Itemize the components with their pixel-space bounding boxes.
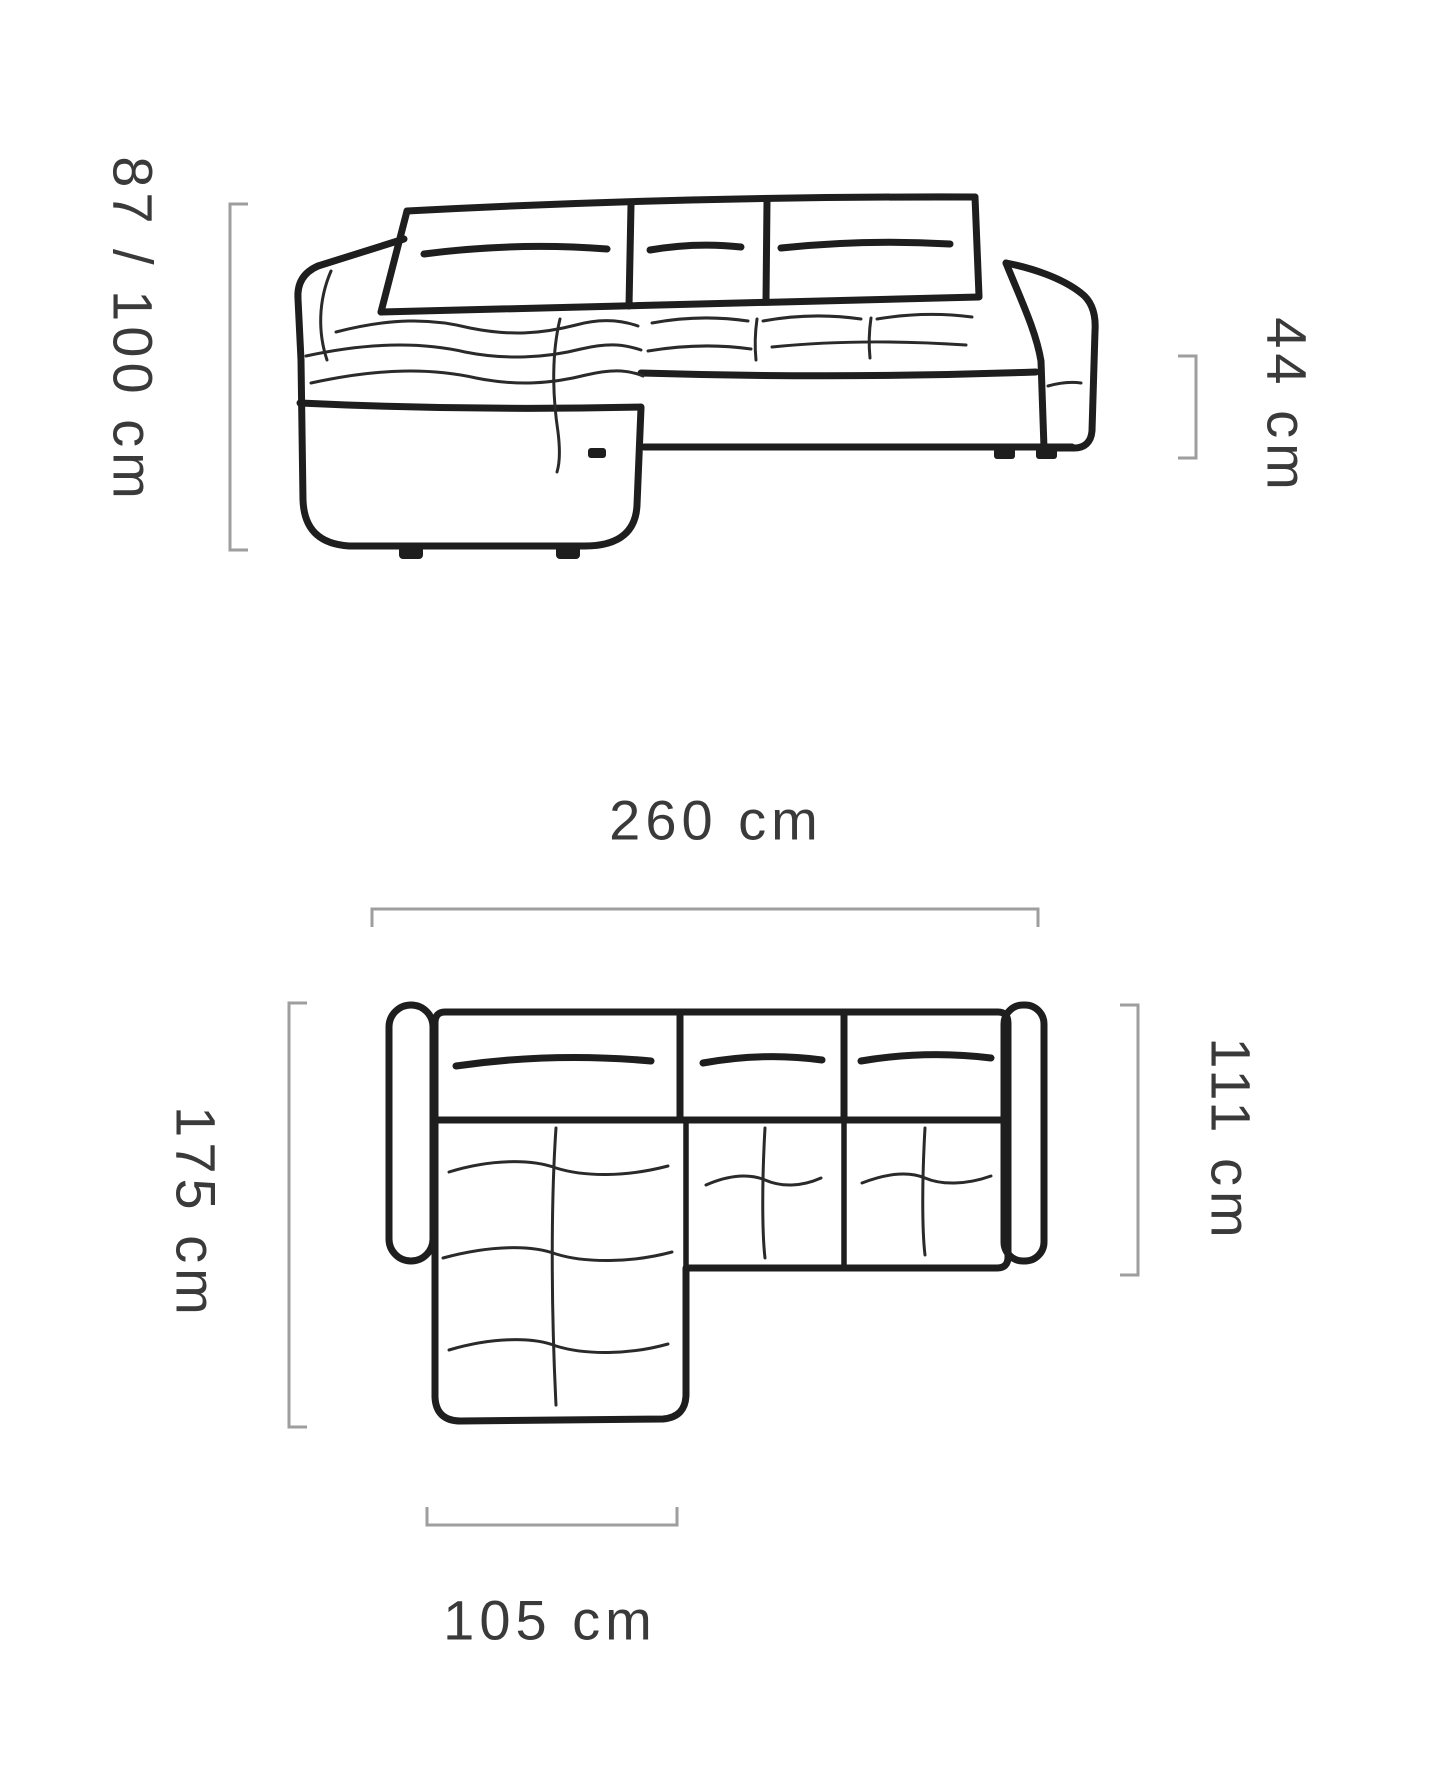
- chaise-width-label: 105 cm: [443, 1588, 657, 1653]
- total-width-label: 260 cm: [609, 788, 823, 853]
- total-depth-bracket: [289, 1003, 307, 1427]
- front-left-armrest-inner-seam: [321, 271, 331, 360]
- front-headrest-fold-1: [424, 246, 607, 254]
- top-headrest-fold-2: [703, 1057, 822, 1063]
- chaise-width-bracket: [427, 1507, 677, 1525]
- front-bench-foot-left: [588, 448, 606, 458]
- dimension-brackets: [230, 204, 1196, 1525]
- total-depth-label: 175 cm: [164, 1106, 229, 1320]
- top-chaise-tuft-vertical: [552, 1128, 556, 1405]
- front-chaise-tuft-row-2: [306, 345, 641, 357]
- front-right-armrest-seam: [1048, 382, 1081, 386]
- front-right-armrest-inner: [1006, 263, 1044, 448]
- front-chaise-tuft-vertical: [554, 319, 560, 472]
- front-back-divider-1: [629, 205, 631, 306]
- front-back-left-edge: [381, 211, 407, 312]
- front-bench-front-edge: [641, 372, 1036, 376]
- sofa-front-view-drawing: [298, 197, 1095, 559]
- front-chaise-foot-left: [399, 546, 423, 559]
- sofa-dimensions-diagram: 87 / 100 cm 44 cm 260 cm 175 cm 111 cm 1…: [0, 0, 1445, 1784]
- front-right-seat-tuft-vertical: [869, 318, 871, 358]
- front-left-armrest-outer: [298, 266, 318, 360]
- front-seat-line: [381, 297, 979, 312]
- top-right-tuft-vertical: [923, 1128, 925, 1255]
- front-back-divider-2: [766, 201, 767, 301]
- top-right-tuft-row: [862, 1174, 991, 1183]
- front-headrest-fold-2: [650, 245, 741, 250]
- front-bench-foot-right: [1036, 448, 1057, 459]
- sofa-top-view-drawing: [389, 1005, 1044, 1421]
- front-bench-foot-mid: [994, 448, 1015, 459]
- total-width-bracket: [372, 909, 1038, 927]
- front-chaise-front-edge: [300, 403, 641, 408]
- front-chaise-foot-right: [556, 546, 580, 559]
- height-label: 87 / 100 cm: [101, 156, 166, 504]
- front-chaise-tuft-row-1: [336, 321, 638, 333]
- top-chaise-tuft-row-2: [443, 1248, 672, 1261]
- front-middle-seat-tuft-1: [652, 318, 748, 323]
- front-headrest-fold-3: [781, 242, 950, 248]
- front-chaise-tuft-row-3: [311, 371, 643, 383]
- seat-height-label: 44 cm: [1255, 317, 1320, 495]
- body-depth-bracket: [1120, 1005, 1138, 1275]
- seat-height-bracket: [1178, 356, 1196, 458]
- top-left-armrest: [389, 1005, 433, 1261]
- diagram-canvas: [0, 0, 1445, 1784]
- front-right-seat-tuft-3: [877, 314, 972, 319]
- body-depth-label: 111 cm: [1199, 1037, 1264, 1242]
- height-bracket: [230, 204, 248, 550]
- top-chaise-tuft-row-3: [449, 1340, 668, 1353]
- front-middle-seat-tuft-2: [648, 346, 751, 351]
- top-headrest-fold-1: [456, 1057, 651, 1066]
- front-right-seat-tuft-1: [763, 316, 861, 321]
- front-middle-seat-tuft-vertical: [755, 319, 757, 360]
- top-chaise-tuft-row-1: [449, 1162, 668, 1175]
- top-middle-tuft-vertical: [763, 1128, 765, 1258]
- front-back-right-edge: [975, 197, 979, 296]
- top-headrest-fold-3: [861, 1055, 991, 1061]
- front-back-top-edge: [407, 197, 975, 211]
